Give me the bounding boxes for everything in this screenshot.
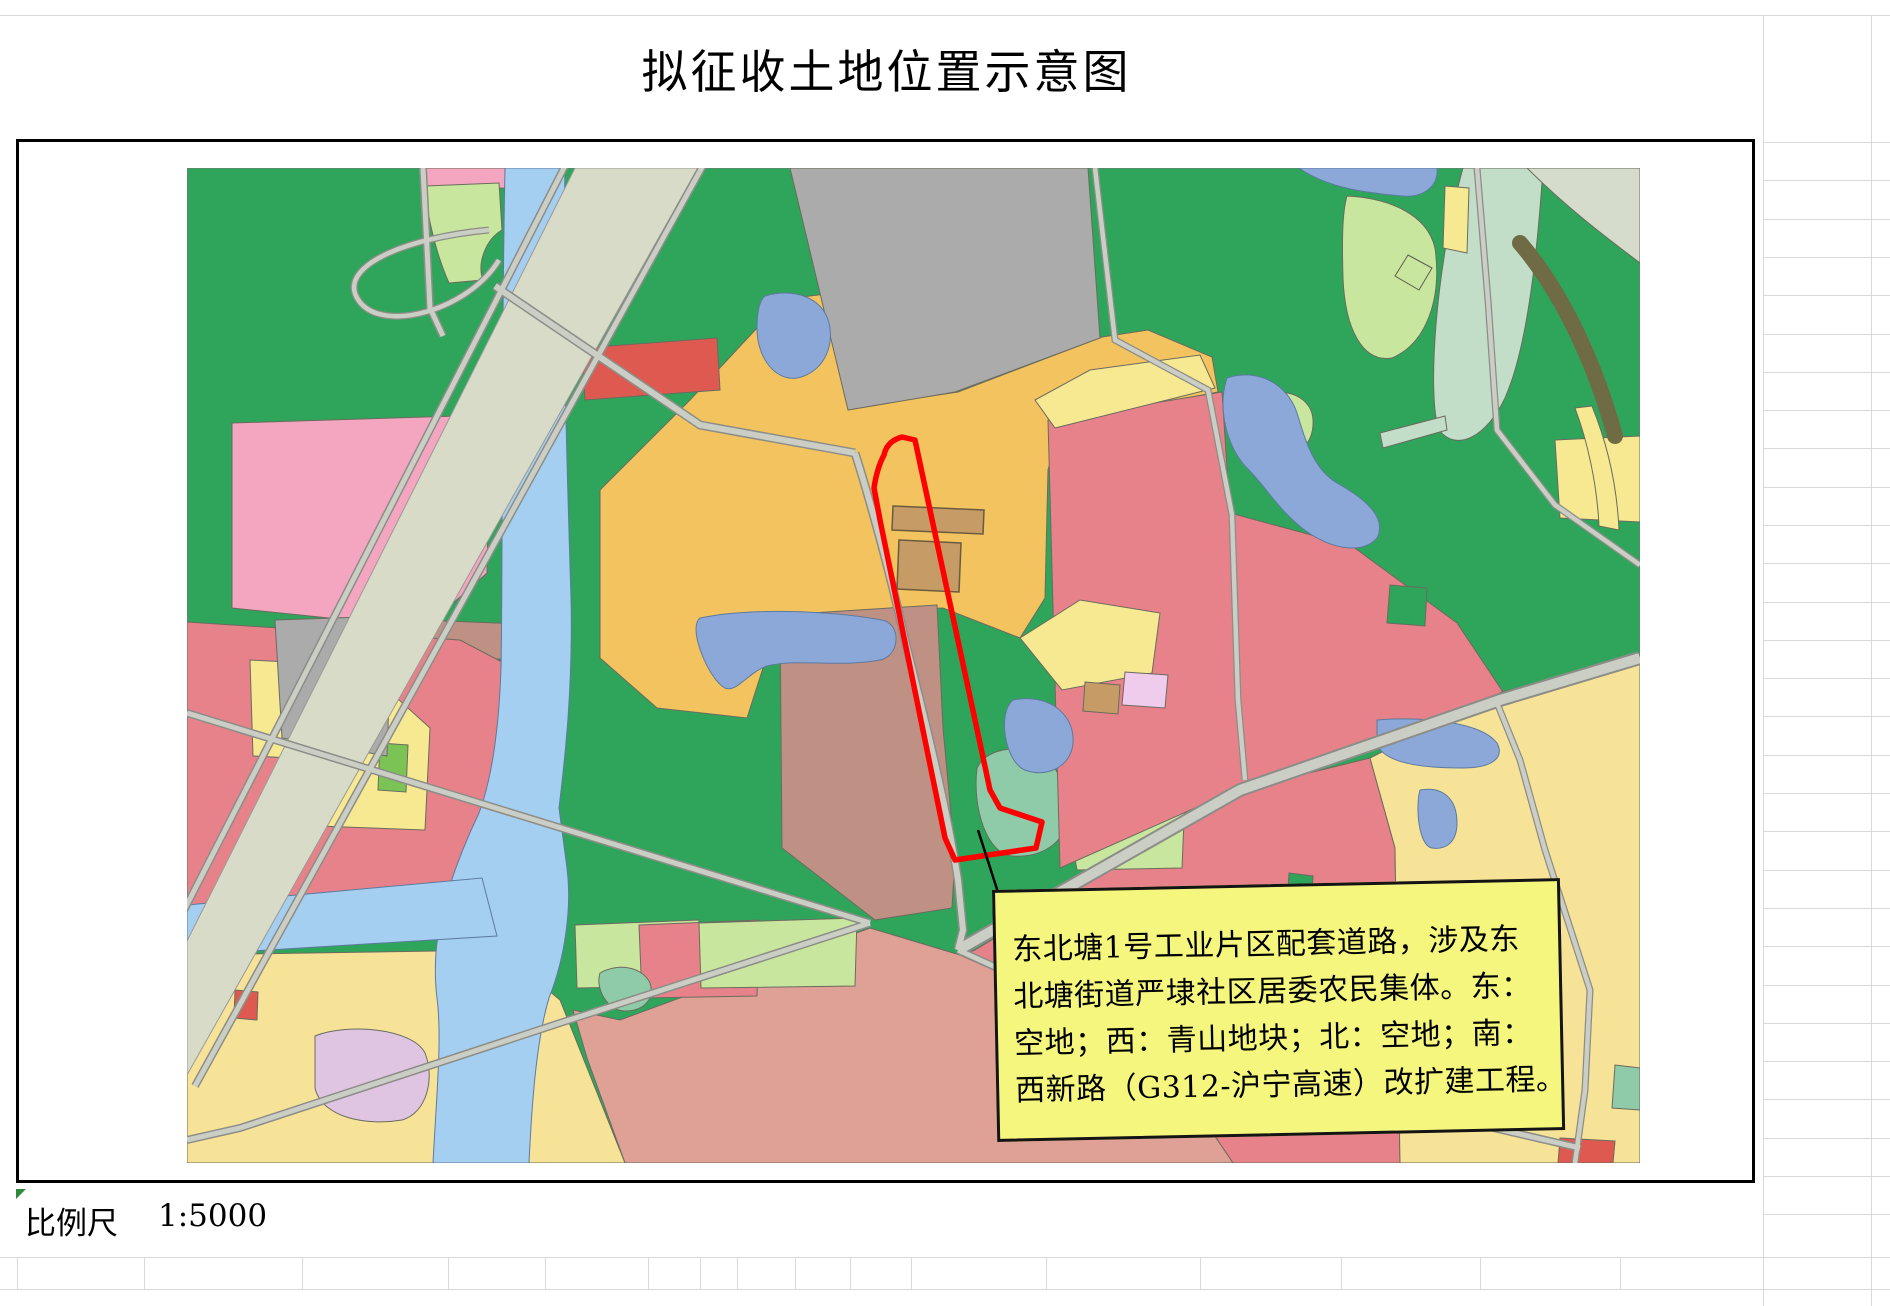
grid-line: [1871, 1257, 1872, 1289]
grid-line: [1046, 1257, 1047, 1289]
grid-line: [448, 1257, 449, 1289]
grid-line: [737, 1257, 738, 1289]
grid-line: [144, 1257, 145, 1289]
grid-line: [1480, 1257, 1481, 1289]
grid-line: [1763, 1214, 1890, 1215]
grid-line: [1763, 985, 1890, 986]
scale-value: 1:5000: [158, 1198, 267, 1243]
grid-line: [1871, 15, 1872, 1306]
grid-line: [850, 1257, 851, 1289]
grid-line: [1763, 1099, 1890, 1100]
teal-parcel: [1612, 1065, 1640, 1110]
scale-label: 比例尺: [25, 1198, 118, 1243]
paleyellow-bit: [1443, 186, 1469, 253]
grid-line: [1763, 448, 1890, 449]
grid-line: [1763, 793, 1890, 794]
grid-line: [1763, 946, 1890, 947]
grid-line: [0, 1257, 1890, 1258]
grid-line: [795, 1257, 796, 1289]
building: [892, 506, 984, 534]
grid-line: [1341, 1257, 1342, 1289]
grid-line: [1763, 602, 1890, 603]
grid-line: [0, 1289, 1890, 1290]
violet-parcel: [1122, 672, 1168, 708]
grid-line: [1763, 640, 1890, 641]
grid-line: [1763, 755, 1890, 756]
grid-line: [648, 1257, 649, 1289]
grid-line: [545, 1257, 546, 1289]
grid-line: [1763, 180, 1890, 181]
grid-line: [1620, 1257, 1621, 1289]
grid-line: [1763, 678, 1890, 679]
grid-line: [1763, 142, 1890, 143]
grid-line: [1763, 908, 1890, 909]
grid-line: [1200, 1257, 1201, 1289]
grid-line: [0, 15, 1890, 16]
grid-line: [302, 1257, 303, 1289]
page-title: 拟征收土地位置示意图: [16, 36, 1757, 102]
grid-line: [1763, 1257, 1764, 1289]
grid-line: [17, 1257, 18, 1289]
callout-box[interactable]: 东北塘1号工业片区配套道路，涉及东 北塘街道严埭社区居委农民集体。东： 空地；西…: [992, 878, 1565, 1142]
grid-line: [1763, 372, 1890, 373]
grid-line: [1763, 525, 1890, 526]
grid-line: [1763, 831, 1890, 832]
grid-line: [1763, 334, 1890, 335]
grid-line: [1763, 257, 1890, 258]
scale-cell[interactable]: 比例尺 1:5000: [25, 1198, 267, 1243]
scale-gap: [118, 1198, 158, 1243]
grid-line: [911, 1257, 912, 1289]
grid-line: [1763, 1023, 1890, 1024]
callout-line: 西新路（G312-沪宁高速）改扩建工程。: [1015, 1056, 1562, 1114]
grid-line: [1763, 1138, 1890, 1139]
grid-line: [1763, 1176, 1890, 1177]
grid-line: [1763, 563, 1890, 564]
grid-line: [1763, 716, 1890, 717]
grid-line: [1763, 410, 1890, 411]
grid-line: [1763, 1061, 1890, 1062]
building: [897, 540, 961, 592]
green-notch: [1387, 585, 1427, 626]
grid-line: [1763, 487, 1890, 488]
grid-line: [700, 1257, 701, 1289]
grid-line: [1763, 870, 1890, 871]
grid-line: [1763, 15, 1764, 1306]
grid-line: [1763, 295, 1890, 296]
grid-line: [1763, 219, 1890, 220]
tan-parcel: [1083, 682, 1120, 714]
spreadsheet-page: { "title": { "text": "拟征收土地位置示意图" }, "ca…: [0, 0, 1890, 1306]
